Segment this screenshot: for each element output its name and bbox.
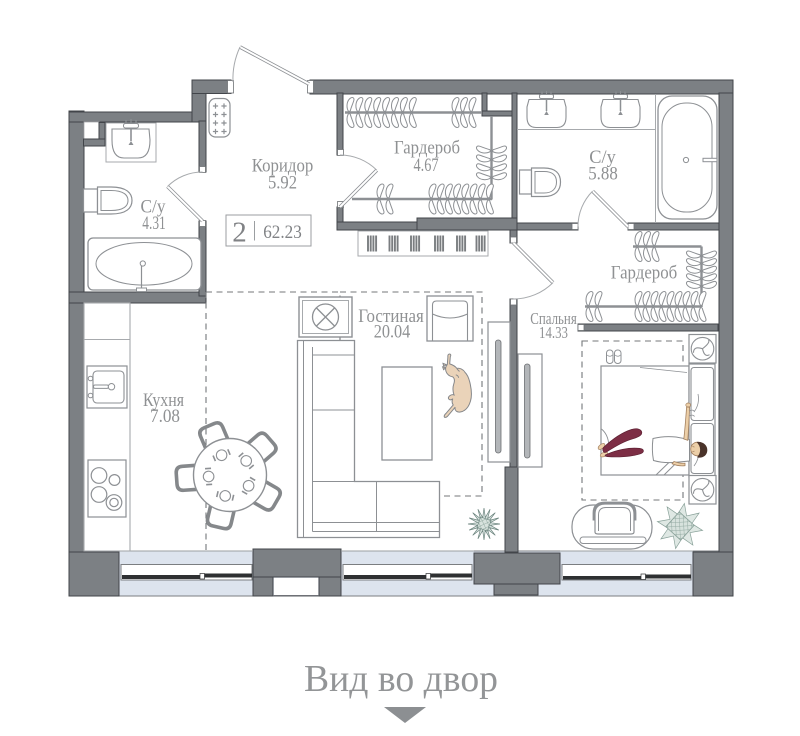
svg-text:62.23: 62.23 (263, 223, 302, 243)
svg-text:5.92: 5.92 (268, 174, 297, 194)
svg-text:14.33: 14.33 (539, 323, 568, 342)
svg-text:2: 2 (232, 217, 247, 249)
svg-text:Гардероб: Гардероб (611, 264, 678, 284)
svg-text:5.88: 5.88 (588, 165, 618, 185)
svg-text:20.04: 20.04 (374, 323, 411, 343)
svg-text:4.67: 4.67 (414, 156, 439, 176)
svg-text:4.31: 4.31 (142, 214, 166, 234)
svg-text:7.08: 7.08 (150, 407, 180, 427)
svg-text:Вид во двор: Вид во двор (304, 658, 498, 700)
